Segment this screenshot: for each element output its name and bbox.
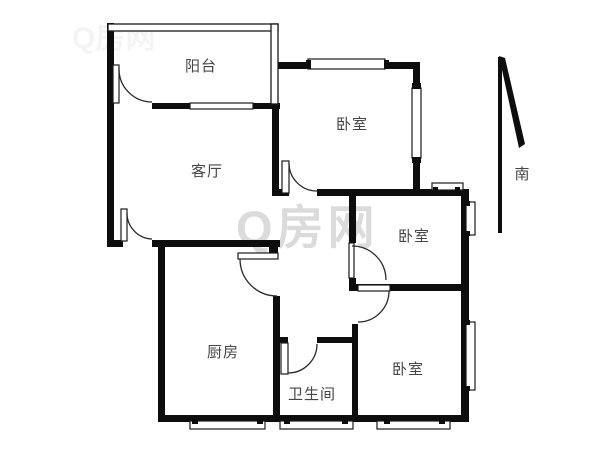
window-cap (439, 417, 445, 424)
window-bedroomtop-top (308, 59, 385, 69)
wall-bathroom-top (317, 337, 358, 343)
compass: 南 (498, 56, 530, 233)
window-cap (412, 157, 421, 163)
window-cap (462, 320, 470, 325)
window-cap (455, 187, 460, 193)
wall-bathroom-top-stub (278, 337, 288, 343)
door-leaf-bedroom-middle (349, 243, 354, 278)
door-leaf-bathroom (281, 343, 288, 374)
wall-balcony-bottom-left (152, 103, 190, 109)
door-leaf-entrance (121, 209, 127, 241)
wall-kitchen-left (158, 247, 165, 422)
window-kitchen-bottom (190, 421, 265, 429)
wall-corridor-right-upper (349, 196, 356, 243)
window-cap (462, 201, 470, 206)
wall-left-exterior (107, 23, 114, 247)
floor-plan: Q房网 Q房网 (0, 0, 600, 450)
balcony-rail-right (271, 24, 278, 104)
window-cap (462, 231, 470, 236)
room-label-bedroom-bottom: 卧室 (392, 361, 424, 378)
window-cap (257, 417, 263, 424)
room-label-bedroom-top: 卧室 (336, 116, 368, 133)
compass-label: 南 (514, 166, 529, 183)
door-arc-bedroom-top (289, 163, 317, 191)
window-cap (192, 417, 198, 424)
compass-arrow-barb (499, 56, 525, 148)
wall-living-bottom (152, 240, 280, 247)
window-cap (384, 60, 389, 69)
room-label-bathroom: 卫生间 (288, 386, 336, 403)
window-cap (412, 83, 421, 89)
window-bedroomtop-right (412, 88, 421, 158)
door-arc-entrance (127, 213, 152, 239)
window-cap (462, 386, 470, 391)
compass-arrow-shaft (498, 57, 502, 233)
window-right-lower (466, 322, 475, 390)
window-cap (342, 417, 348, 424)
door-arc-bathroom (288, 344, 317, 373)
door-arc-balcony (119, 69, 152, 102)
window-right-upper (466, 202, 475, 235)
door-arc-bedroom-bottom (358, 291, 389, 322)
room-label-bedroom-middle: 卧室 (398, 228, 430, 245)
room-label-kitchen: 厨房 (207, 344, 239, 361)
door-leaf-bedroom-top (282, 161, 289, 193)
wall-kitchen-divider (273, 296, 280, 422)
floor-plan-canvas: Q房网 Q房网 (0, 0, 600, 450)
window-cap (433, 187, 438, 193)
room-label-living-room: 客厅 (191, 163, 223, 180)
window-cap (284, 417, 290, 424)
window-cap (306, 60, 311, 69)
wall-living-right (272, 103, 279, 192)
room-label-balcony: 阳台 (185, 58, 217, 75)
door-leaf-bedroom-bottom (358, 285, 390, 291)
balcony-rail-top (108, 24, 278, 31)
door-leaf-kitchen (238, 253, 278, 259)
window-balcony-living (190, 103, 253, 109)
window-cap (384, 417, 390, 424)
door-leaf-balcony (113, 65, 119, 103)
door-arc-kitchen (240, 259, 277, 296)
